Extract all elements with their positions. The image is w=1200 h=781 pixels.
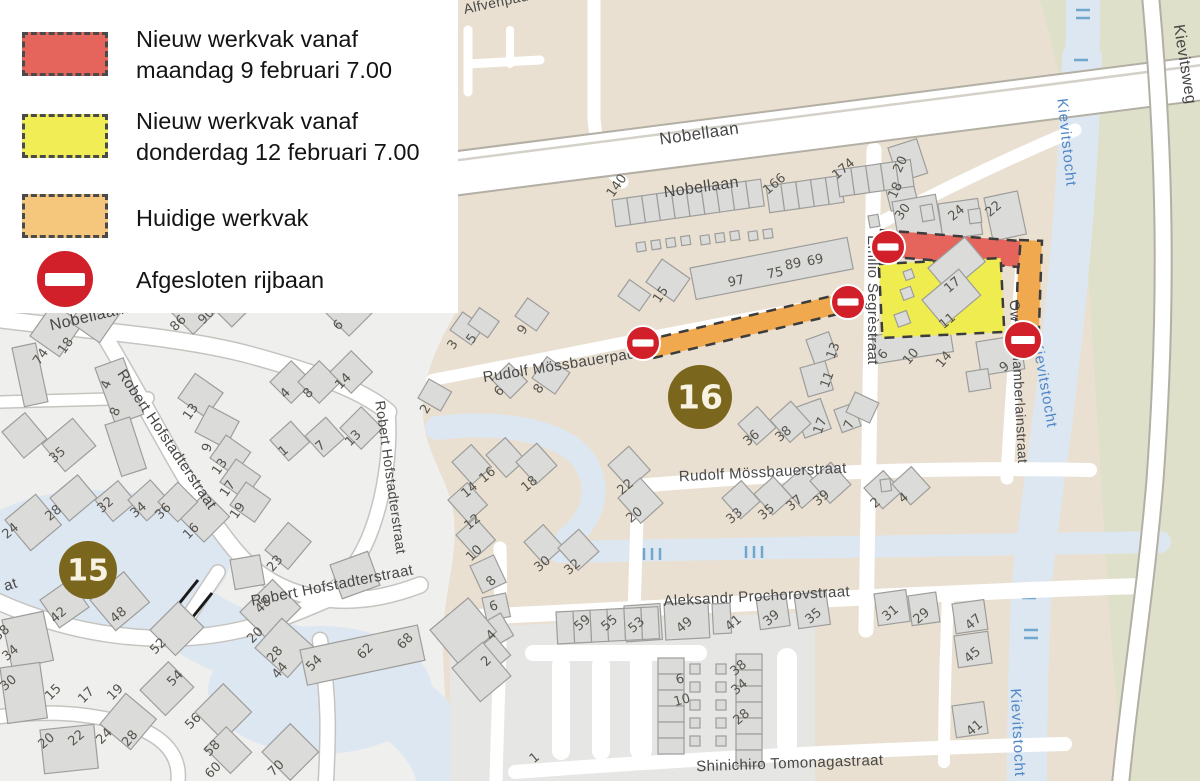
area-badge-number: 15: [67, 553, 109, 588]
construction-notice-map: AlfvenpadNobellaanNobellaanNobellaanKiev…: [0, 0, 1200, 781]
building: [230, 555, 265, 590]
no-entry-icon: [37, 251, 93, 307]
no-entry-icon: [1004, 321, 1042, 359]
building: [736, 734, 762, 750]
building: [690, 718, 700, 728]
area-badge-number: 16: [677, 378, 723, 417]
building: [966, 369, 991, 392]
legend-line: Nieuw werkvak vanaf: [136, 106, 420, 137]
legend-swatch-current: [22, 194, 108, 238]
building: [716, 700, 726, 710]
building: [730, 231, 740, 241]
area-badge: 15: [59, 541, 117, 599]
legend-line: maandag 9 februari 7.00: [136, 55, 392, 86]
building: [920, 204, 935, 222]
no-entry-icon: [626, 326, 660, 360]
building: [636, 242, 646, 252]
legend-label-new-feb12: Nieuw werkvak vanaf donderdag 12 februar…: [136, 106, 420, 168]
legend-line: donderdag 12 februari 7.00: [136, 137, 420, 168]
building: [748, 231, 758, 241]
building: [968, 208, 982, 224]
building: [690, 736, 700, 746]
building: [651, 240, 661, 250]
building: [690, 682, 700, 692]
building: [666, 238, 676, 248]
building: [763, 229, 773, 239]
legend-label-current: Huidige werkvak: [136, 203, 308, 234]
no-entry-icon: [831, 285, 865, 319]
building: [716, 718, 726, 728]
legend: Nieuw werkvak vanaf maandag 9 februari 7…: [0, 0, 458, 313]
legend-line: Afgesloten rijbaan: [136, 265, 324, 296]
legend-line: Huidige werkvak: [136, 203, 308, 234]
building: [556, 611, 575, 644]
building: [690, 664, 700, 674]
building: [715, 233, 725, 243]
building: [716, 664, 726, 674]
no-entry-icon: [871, 230, 905, 264]
building: [658, 738, 684, 754]
building: [716, 682, 726, 692]
legend-line: Nieuw werkvak vanaf: [136, 24, 392, 55]
legend-label-closed-road: Afgesloten rijbaan: [136, 265, 324, 296]
no-entry-bar: [45, 273, 85, 286]
legend-swatch-new-feb12: [22, 114, 108, 158]
building: [658, 722, 684, 738]
building: [681, 235, 691, 245]
building: [746, 179, 765, 208]
legend-label-new-feb9: Nieuw werkvak vanaf maandag 9 februari 7…: [136, 24, 392, 86]
building: [868, 214, 880, 228]
building: [716, 736, 726, 746]
building: [700, 235, 710, 245]
building: [880, 479, 892, 492]
area-badge: 16: [668, 365, 732, 429]
legend-swatch-new-feb9: [22, 32, 108, 76]
